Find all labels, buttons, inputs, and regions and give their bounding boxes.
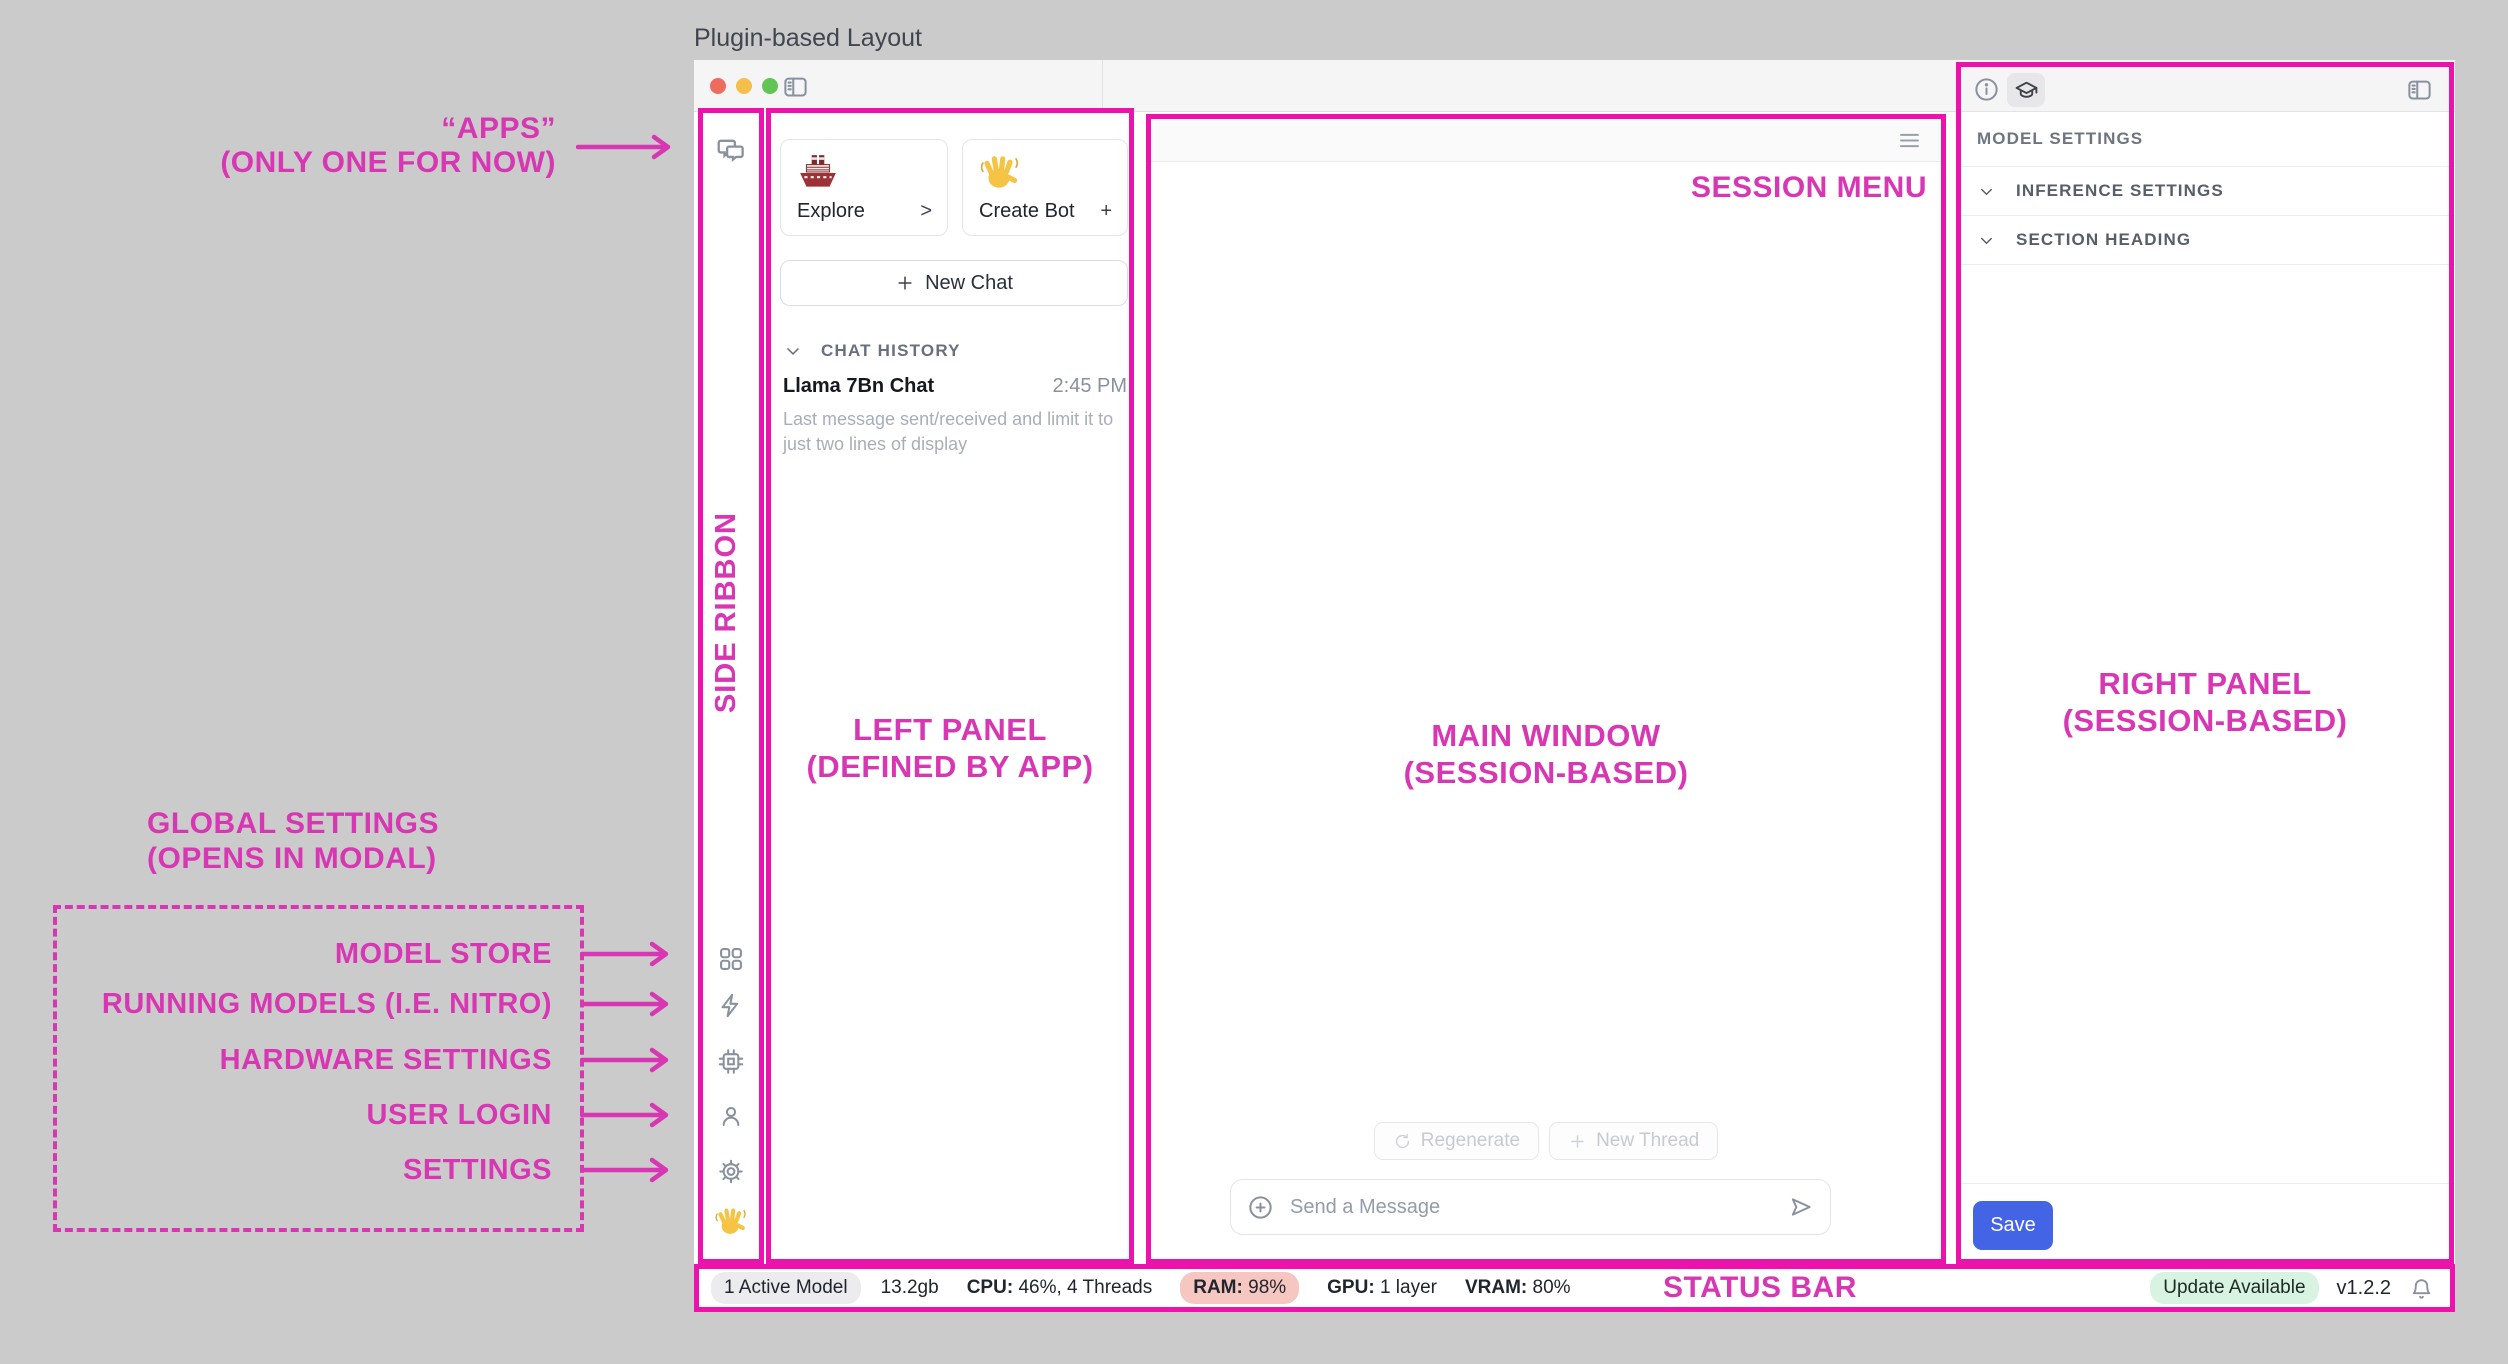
chat-list-item[interactable]: Llama 7Bn Chat 2:45 PM Last message sent…	[783, 375, 1127, 457]
design-canvas: Plugin-based Layout Explore > Create Bot	[0, 0, 2508, 1364]
settings-annotation: SETTINGS	[48, 1153, 552, 1187]
hardware-settings-annotation: HARDWARE SETTINGS	[48, 1043, 552, 1077]
chevron-down-icon	[783, 341, 803, 361]
vram-metric: VRAM: 80%	[1465, 1277, 1571, 1299]
wave-emoji-icon	[979, 152, 1021, 194]
section-heading-label: SECTION HEADING	[2016, 230, 2191, 250]
right-panel: MODEL SETTINGS INFERENCE SETTINGS SECTIO…	[1956, 62, 2454, 1264]
info-icon[interactable]	[1973, 76, 2000, 103]
message-input-container	[1230, 1179, 1831, 1235]
refresh-icon	[1393, 1132, 1412, 1151]
settings-gear-icon[interactable]	[718, 1158, 745, 1185]
plus-icon	[1568, 1132, 1587, 1151]
left-panel-annotation: LEFT PANEL (DEFINED BY APP)	[771, 711, 1129, 785]
titlebar-divider	[1102, 60, 1103, 112]
apps-annotation: “APPS” (ONLY ONE FOR NOW)	[210, 112, 556, 180]
sidebar-toggle-icon[interactable]	[782, 73, 809, 100]
chat-item-time: 2:45 PM	[1053, 375, 1127, 398]
version-label: v1.2.2	[2337, 1277, 2391, 1300]
cpu-metric: CPU: 46%, 4 Threads	[967, 1277, 1153, 1299]
model-store-icon[interactable]	[717, 945, 745, 973]
inference-settings-label: INFERENCE SETTINGS	[2016, 181, 2224, 201]
settings-arrow	[580, 1157, 680, 1183]
attach-plus-icon[interactable]	[1247, 1194, 1274, 1221]
model-settings-tab[interactable]	[2007, 73, 2045, 107]
side-ribbon-annotation: SIDE RIBBON	[706, 498, 746, 728]
status-bar-annotation: STATUS BAR	[1663, 1271, 1857, 1305]
hardware-settings-arrow	[580, 1047, 680, 1073]
zoom-window-button[interactable]	[762, 78, 778, 94]
section-heading-section[interactable]: SECTION HEADING	[1961, 216, 2449, 265]
left-panel: Explore > Create Bot + New Chat CHAT HIS…	[766, 108, 1134, 1264]
model-store-arrow	[580, 941, 680, 967]
main-window: SESSION MENU MAIN WINDOW (SESSION-BASED)…	[1146, 114, 1946, 1264]
new-chat-button[interactable]: New Chat	[780, 260, 1128, 306]
chat-app-icon[interactable]	[716, 135, 747, 166]
panel-toggle-icon[interactable]	[2406, 76, 2433, 103]
new-thread-label: New Thread	[1596, 1130, 1699, 1152]
right-panel-toolbar	[1961, 67, 2449, 112]
page-title: Plugin-based Layout	[694, 24, 922, 53]
status-bar: 1 Active Model 13.2gb CPU: 46%, 4 Thread…	[694, 1264, 2455, 1312]
ship-emoji-icon	[797, 152, 839, 194]
chat-item-preview: Last message sent/received and limit it …	[783, 407, 1119, 457]
ram-metric-badge: RAM: 98%	[1180, 1272, 1299, 1304]
gpu-metric: GPU: 1 layer	[1327, 1277, 1437, 1299]
regenerate-button[interactable]: Regenerate	[1374, 1122, 1539, 1160]
chevron-down-icon	[1977, 231, 1996, 250]
running-models-annotation: RUNNING MODELS (I.E. NITRO)	[48, 987, 552, 1021]
create-bot-card-label: Create Bot	[979, 200, 1075, 223]
update-available-badge[interactable]: Update Available	[2150, 1272, 2318, 1304]
message-input[interactable]	[1288, 1195, 1774, 1220]
create-bot-card[interactable]: Create Bot +	[962, 139, 1128, 236]
apps-arrow	[576, 134, 682, 160]
thread-actions: Regenerate New Thread	[1151, 1122, 1941, 1160]
bell-icon[interactable]	[2409, 1276, 2434, 1301]
active-model-badge: 1 Active Model	[711, 1272, 861, 1304]
plus-icon	[895, 273, 915, 293]
running-models-icon[interactable]	[718, 992, 745, 1019]
chat-item-title: Llama 7Bn Chat	[783, 375, 934, 398]
explore-card[interactable]: Explore >	[780, 139, 948, 236]
model-settings-label: MODEL SETTINGS	[1977, 129, 2143, 149]
send-icon[interactable]	[1788, 1194, 1814, 1220]
save-button[interactable]: Save	[1973, 1201, 2053, 1250]
user-login-icon[interactable]	[718, 1103, 745, 1130]
hardware-settings-icon[interactable]	[718, 1048, 745, 1075]
wave-hand-icon[interactable]	[714, 1205, 748, 1239]
close-window-button[interactable]	[710, 78, 726, 94]
main-window-annotation: MAIN WINDOW (SESSION-BASED)	[1151, 717, 1941, 791]
main-window-header	[1151, 119, 1941, 162]
explore-card-chevron: >	[920, 200, 932, 223]
session-menu-annotation: SESSION MENU	[1527, 171, 1927, 205]
chat-history-header[interactable]: CHAT HISTORY	[783, 341, 961, 361]
minimize-window-button[interactable]	[736, 78, 752, 94]
right-panel-annotation: RIGHT PANEL (SESSION-BASED)	[1961, 665, 2449, 739]
graduation-cap-icon	[2014, 78, 2039, 103]
user-login-annotation: USER LOGIN	[48, 1098, 552, 1132]
global-settings-annotation: GLOBAL SETTINGS (OPENS IN MODAL)	[147, 806, 439, 876]
inference-settings-section[interactable]: INFERENCE SETTINGS	[1961, 167, 2449, 216]
model-settings-header: MODEL SETTINGS	[1961, 112, 2449, 167]
create-bot-card-plus: +	[1100, 200, 1112, 223]
right-panel-footer: Save	[1961, 1183, 2449, 1184]
model-size: 13.2gb	[881, 1277, 939, 1299]
chat-history-label: CHAT HISTORY	[821, 341, 961, 361]
chevron-down-icon	[1977, 182, 1996, 201]
new-thread-button[interactable]: New Thread	[1549, 1122, 1718, 1160]
new-chat-label: New Chat	[925, 272, 1013, 295]
regenerate-label: Regenerate	[1421, 1130, 1520, 1152]
explore-card-label: Explore	[797, 200, 865, 223]
running-models-arrow	[580, 991, 680, 1017]
user-login-arrow	[580, 1102, 680, 1128]
session-menu-icon[interactable]	[1896, 127, 1923, 154]
model-store-annotation: MODEL STORE	[48, 937, 552, 971]
status-metrics: 1 Active Model 13.2gb CPU: 46%, 4 Thread…	[711, 1272, 1571, 1304]
